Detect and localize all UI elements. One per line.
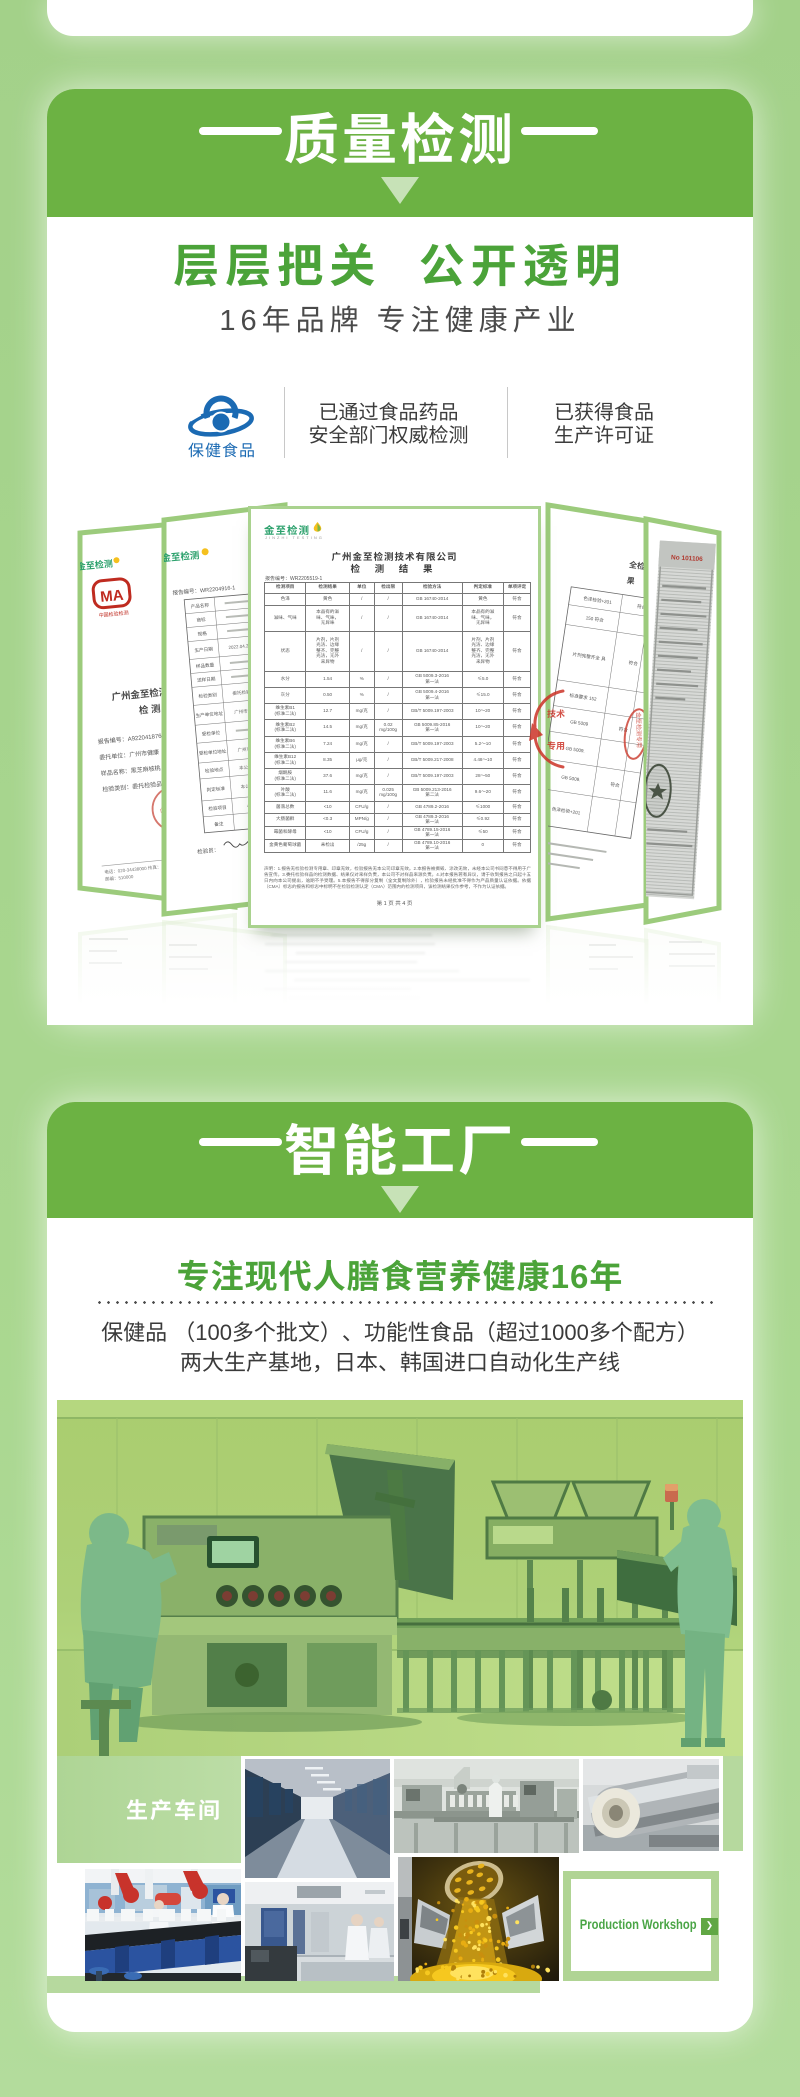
svg-text:备注: 备注 — [214, 821, 224, 828]
svg-text:果: 果 — [626, 575, 636, 587]
svg-text:技术: 技术 — [547, 707, 565, 720]
svg-text:检 测: 检 测 — [138, 701, 161, 717]
svg-text:MA: MA — [99, 584, 124, 607]
svg-text:专用: 专用 — [547, 739, 565, 752]
svg-text:商标: 商标 — [196, 617, 206, 624]
svg-text:No 101106: No 101106 — [671, 551, 704, 563]
svg-text:金至检测专用: 金至检测专用 — [634, 712, 644, 748]
svg-text:规格: 规格 — [197, 631, 207, 638]
